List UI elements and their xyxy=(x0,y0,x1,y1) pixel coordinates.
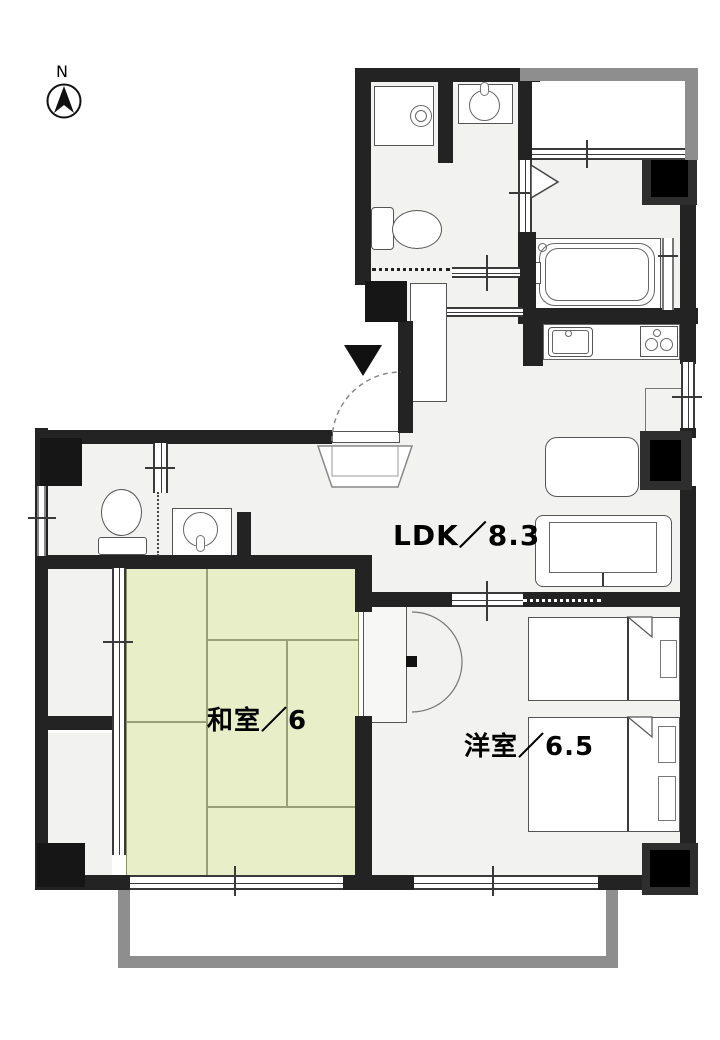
bathroom-folding-door-icon xyxy=(531,165,558,198)
ldk-label: LDK／8.3 xyxy=(393,514,540,554)
compass-n-label: N xyxy=(56,62,69,81)
bed-fold-corner xyxy=(628,717,652,737)
closet-double-door-arcs xyxy=(406,612,462,712)
western-room-label: 洋室／6.5 xyxy=(464,726,594,763)
bed-fold-corner xyxy=(628,617,652,637)
genkan-step xyxy=(318,446,412,487)
japanese-room-label: 和室／6 xyxy=(207,700,307,737)
plan-overlay xyxy=(0,0,720,1040)
entrance-door-arc xyxy=(332,372,401,441)
north-compass-icon xyxy=(48,85,81,118)
entrance-marker-icon xyxy=(344,345,382,376)
floor-plan: N LDK／8.3 和室／6 洋室／6.5 xyxy=(0,0,720,1040)
